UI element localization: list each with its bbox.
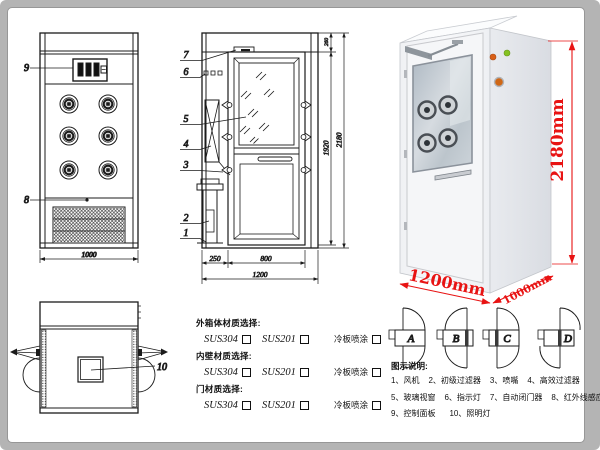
door-swing-arc-right	[138, 358, 155, 392]
material-option-sus304: SUS304	[204, 331, 238, 348]
total-width-dim: 1200	[253, 270, 268, 279]
hinge	[404, 222, 407, 230]
callout-8-label: 8	[24, 195, 29, 206]
material-option-paint: 冷板喷涂	[334, 397, 368, 414]
air-grille	[53, 207, 125, 243]
material-checkbox[interactable]	[242, 368, 251, 377]
legend-item: 1、风机	[391, 376, 419, 385]
total-height-dim: 2180	[335, 132, 344, 147]
callout-6-label: 6	[184, 67, 189, 78]
hinge	[404, 150, 407, 158]
door-width-dim: 800	[260, 254, 272, 263]
door-option-c-label: C	[503, 333, 511, 345]
legend-item: 3、喷嘴	[490, 376, 518, 385]
door-height-dim: 1920	[322, 140, 331, 155]
door-swing-arc-left	[23, 358, 40, 392]
callout-7-label: 7	[184, 50, 190, 61]
material-selection: 外箱体材质选择: SUS304 SUS201 冷板喷涂 内壁材质选择: SUS3…	[196, 315, 386, 414]
legend-row: 5、玻璃视窗6、指示灯7、自动闭门器8、红外线感应器	[391, 390, 583, 407]
top-view: 10	[10, 302, 168, 413]
top-dim: 260	[324, 38, 330, 47]
door-option-a-label: A	[407, 333, 415, 345]
callout-5-label: 5	[184, 114, 189, 125]
callout-3-label: 3	[183, 160, 189, 171]
front-width-dim: 1000	[82, 250, 97, 259]
material-option-sus201: SUS201	[262, 331, 296, 348]
emergency-button	[495, 78, 504, 87]
material-checkbox[interactable]	[300, 335, 309, 344]
legend-item: 10、照明灯	[449, 409, 490, 418]
section-view: 7 6 5 4 3 2 1	[180, 33, 349, 284]
legend-item: 2、初级过滤器	[428, 376, 480, 385]
legend-item: 6、指示灯	[444, 393, 480, 402]
left-bay-dim: 250	[209, 254, 221, 263]
material-option-sus304: SUS304	[204, 397, 238, 414]
material-checkbox[interactable]	[242, 335, 251, 344]
door-wing-right	[138, 346, 168, 360]
legend-title: 图示说明:	[391, 359, 583, 373]
legend-item: 9、控制面板	[391, 409, 435, 418]
material-option-paint: 冷板喷涂	[334, 364, 368, 381]
cabinet-side	[490, 28, 551, 293]
callout-9-label: 9	[24, 63, 29, 74]
callout-10-label: 10	[157, 362, 167, 373]
legend-item: 7、自动闭门器	[490, 393, 542, 402]
door-option-d-label: D	[563, 333, 572, 345]
door-wing-left	[10, 346, 40, 360]
material-option-sus304: SUS304	[204, 364, 238, 381]
legend-item: 5、玻璃视窗	[391, 393, 435, 402]
legend-row: 1、风机2、初级过滤器3、喷嘴4、高效过滤器	[391, 373, 583, 390]
legend-item: 4、高效过滤器	[527, 376, 579, 385]
material-checkbox[interactable]	[372, 335, 381, 344]
material-checkbox[interactable]	[372, 368, 381, 377]
front-view: 9 8 1000	[24, 33, 138, 263]
hinge	[404, 70, 407, 78]
door-option-b-label: B	[453, 333, 460, 345]
material-checkbox[interactable]	[372, 401, 381, 410]
material-checkbox[interactable]	[300, 368, 309, 377]
material-section-title-outer: 外箱体材质选择:	[196, 315, 386, 331]
material-checkbox[interactable]	[242, 401, 251, 410]
material-section-title-door: 门材质选择:	[196, 381, 386, 397]
product-photo: 2180mm 1200mm 1000mm	[400, 16, 578, 307]
red-button	[490, 54, 496, 60]
photo-height-dim: 2180mm	[548, 98, 568, 181]
green-button	[504, 50, 510, 56]
material-option-sus201: SUS201	[262, 397, 296, 414]
callout-4-label: 4	[184, 139, 189, 150]
legend: 图示说明: 1、风机2、初级过滤器3、喷嘴4、高效过滤器 5、玻璃视窗6、指示灯…	[391, 359, 583, 423]
spec-sheet: 9 8 1000	[0, 0, 600, 450]
height-dimensions: 260 1920 2180	[318, 33, 349, 248]
width-dimensions: 250 800 1200	[202, 250, 318, 284]
callout-2-label: 2	[184, 213, 189, 224]
material-checkbox[interactable]	[300, 401, 309, 410]
material-option-paint: 冷板喷涂	[334, 331, 368, 348]
material-option-sus201: SUS201	[262, 364, 296, 381]
callout-1-label: 1	[184, 228, 189, 239]
material-section-title-inner: 内壁材质选择:	[196, 348, 386, 364]
legend-item: 8、红外线感应器	[551, 393, 600, 402]
legend-row: 9、控制面板10、照明灯	[391, 406, 583, 423]
